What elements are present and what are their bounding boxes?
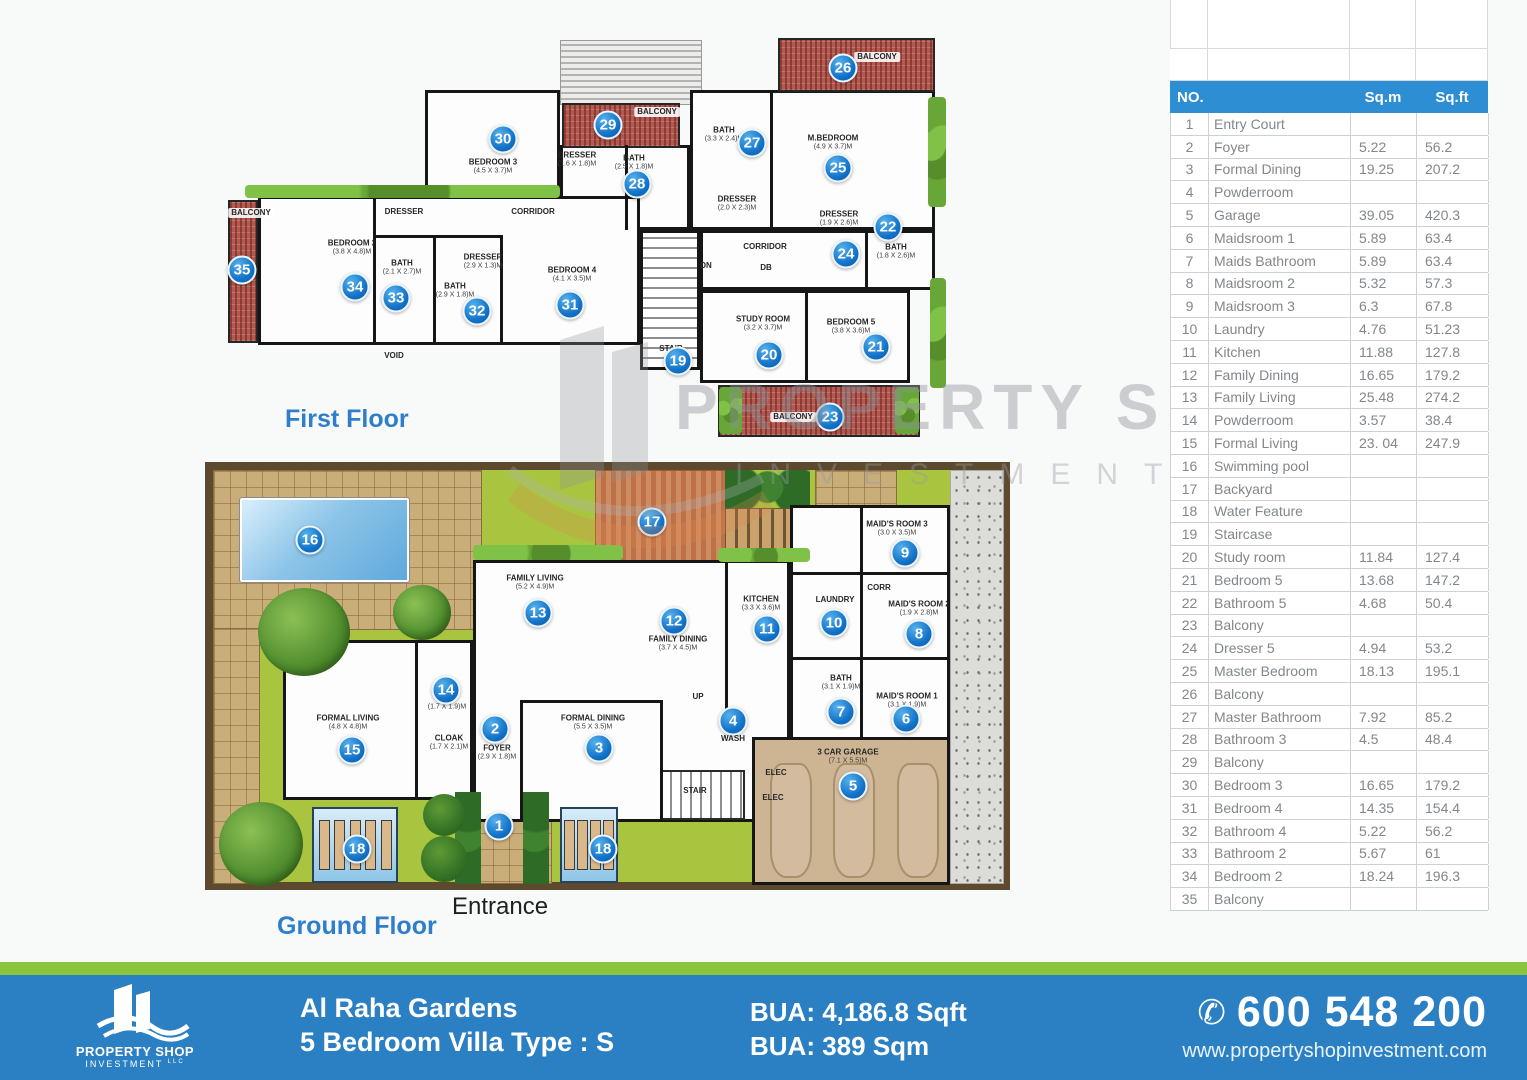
bath33-dims: (2.1 x 2.7)m	[383, 269, 422, 278]
table-cell: 57.3	[1417, 273, 1489, 295]
table-cell	[1351, 615, 1417, 637]
table-row: 15Formal Living23. 04247.9	[1170, 432, 1488, 455]
table-cell: 51.23	[1417, 318, 1489, 340]
balcony26-label: BALCONY	[854, 52, 900, 62]
ff-dresser-a-dims: (1.6 x 1.8)m	[558, 161, 597, 170]
table-cell: 85.2	[1417, 706, 1489, 728]
table-cell	[1417, 615, 1489, 637]
gravel-side-yard	[950, 470, 1004, 884]
ff-db-label: DB	[760, 263, 772, 273]
cloak-name: CLOAK	[435, 734, 463, 743]
gf-corr-label: CORR	[867, 583, 891, 593]
tree	[258, 588, 350, 676]
table-cell: Water Feature	[1209, 501, 1351, 523]
gf-stair-name: STAIR	[683, 786, 706, 795]
balcony-planter	[719, 387, 742, 434]
foyer-marker: 2	[481, 715, 510, 744]
company-logo-title: PROPERTY SHOP	[40, 1044, 230, 1059]
table-cell: 13.68	[1351, 569, 1417, 591]
hedge	[718, 548, 810, 562]
foyer-label: FOYER(2.9 x 1.8)m	[478, 744, 517, 763]
tree	[219, 802, 303, 886]
table-cell: 20	[1171, 546, 1209, 568]
balcony29-marker: 29	[594, 111, 623, 140]
family-living-label: FAMILY LIVING(5.2 x 4.9)m	[506, 574, 563, 593]
mbedroom-name: M.BEDROOM	[808, 134, 859, 143]
table-row: 24Dresser 54.9453.2	[1170, 637, 1488, 660]
entrance-palms	[523, 792, 549, 884]
wall	[770, 90, 773, 230]
table-cell	[1417, 478, 1489, 500]
phone-icon: ✆	[1197, 993, 1227, 1033]
table-row: 22Bathroom 54.6850.4	[1170, 592, 1488, 615]
table-cell: 5.22	[1351, 820, 1417, 842]
table-cell: 27	[1171, 706, 1209, 728]
table-cell	[1351, 523, 1417, 545]
wall	[725, 560, 728, 712]
wf-right-marker: 18	[589, 835, 618, 864]
table-cell: 24	[1171, 637, 1209, 659]
table-cell: Balcony	[1209, 683, 1351, 705]
table-cell: Swimming pool	[1209, 455, 1351, 477]
ff-dresser-b-label: DRESSER(2.0 x 2.3)m	[718, 195, 757, 214]
table-cell: 61	[1417, 843, 1489, 865]
table-cell: 33	[1171, 843, 1209, 865]
table-row: 13Family Living25.48274.2	[1170, 387, 1488, 410]
bath22-marker: 22	[874, 213, 903, 242]
formal-living-marker: 15	[338, 736, 367, 765]
table-cell: Bathroom 5	[1209, 592, 1351, 614]
table-cell: 4.68	[1351, 592, 1417, 614]
table-row: 30Bedroom 316.65179.2	[1170, 774, 1488, 797]
table-cell: 28	[1171, 729, 1209, 751]
ff-dresser-a-label: DRESSER(1.6 x 1.8)m	[558, 151, 597, 170]
formal-living-dims: (4.8 x 4.8)m	[317, 724, 380, 733]
table-cell: 23. 04	[1351, 432, 1417, 454]
balcony35-name: BALCONY	[231, 208, 271, 217]
table-cell	[1351, 478, 1417, 500]
ff-corridor-b-name: CORRIDOR	[743, 242, 787, 251]
table-cell: Foyer	[1209, 136, 1351, 158]
foyer-name: FOYER	[483, 744, 511, 753]
table-cell: Kitchen	[1209, 341, 1351, 363]
family-living-marker: 13	[524, 599, 553, 628]
swimming-pool	[240, 498, 409, 582]
table-cell: 25	[1171, 660, 1209, 682]
bath27-marker: 27	[738, 129, 767, 158]
table-cell: 18.13	[1351, 660, 1417, 682]
wall	[500, 235, 503, 345]
bedroom4-dims: (4.1 x 3.5)m	[548, 276, 596, 285]
table-cell: Entry Court	[1209, 113, 1351, 135]
wash-label: WASH	[721, 734, 745, 744]
table-row: 27Master Bathroom7.9285.2	[1170, 706, 1488, 729]
table-cell: Balcony	[1209, 615, 1351, 637]
table-cell: 10	[1171, 318, 1209, 340]
gf-elec-b-label: ELEC	[762, 793, 783, 803]
table-cell: Powderroom	[1209, 409, 1351, 431]
hedge	[473, 545, 623, 560]
table-cell: 25.48	[1351, 387, 1417, 409]
garage-name: 3 CAR GARAGE	[817, 748, 878, 757]
bedroom2-label: BEDROOM 2(3.8 x 4.8)m	[328, 239, 376, 258]
bedroom2-marker: 34	[341, 273, 370, 302]
bua-sqm: BUA: 389 Sqm	[750, 1031, 929, 1062]
gf-elec-b-name: ELEC	[762, 793, 783, 802]
table-cell	[1417, 683, 1489, 705]
table-cell: 21	[1171, 569, 1209, 591]
table-cell: 14.35	[1351, 797, 1417, 819]
empty-cell	[1350, 49, 1416, 81]
ff-dn-label: DN	[700, 261, 712, 271]
table-cell: 18	[1171, 501, 1209, 523]
laundry-label: LAUNDRY	[816, 595, 855, 605]
bath7-name: BATH	[830, 674, 852, 683]
bedroom5-marker: 21	[862, 333, 891, 362]
bedroom3-dims: (4.5 x 3.7)m	[469, 168, 517, 177]
table-cell: Maidsroom 3	[1209, 295, 1351, 317]
table-cell: 154.4	[1417, 797, 1489, 819]
table-cell: 196.3	[1417, 865, 1489, 887]
bath33-label: BATH(2.1 x 2.7)m	[383, 259, 422, 278]
balcony26-name: BALCONY	[857, 52, 897, 61]
family-dining-dims: (3.7 x 4.5)m	[649, 645, 708, 654]
table-cell: 179.2	[1417, 364, 1489, 386]
formal-dining-label: FORMAL DINING(5.5 x 3.5)m	[561, 714, 625, 733]
wall	[860, 505, 863, 740]
table-cell: Balcony	[1209, 751, 1351, 773]
table-cell: 16.65	[1351, 364, 1417, 386]
laundry-marker: 10	[820, 609, 849, 638]
kitchen-dims: (3.3 x 3.6)m	[742, 605, 781, 614]
ground-floor-plan: 1FOYER(2.9 x 1.8)m2FORMAL DINING(5.5 x 3…	[205, 462, 1010, 890]
bedroom3-label: BEDROOM 3(4.5 x 3.7)m	[469, 158, 517, 177]
formal-living-name: FORMAL LIVING	[317, 714, 380, 723]
dresser24-marker: 24	[832, 240, 861, 269]
table-row: 11Kitchen11.88127.8	[1170, 341, 1488, 364]
table-row: 4Powderroom	[1170, 181, 1488, 204]
ff-dresser-d-name: DRESSER	[385, 207, 424, 216]
dresser24-name: DRESSER	[820, 210, 859, 219]
table-row: 10Laundry4.7651.23	[1170, 318, 1488, 341]
bedroom5-name: BEDROOM 5	[827, 318, 875, 327]
wall	[415, 640, 418, 800]
table-cell: Maids Bathroom	[1209, 250, 1351, 272]
table-cell: Bathroom 2	[1209, 843, 1351, 865]
table-cell: 5.67	[1351, 843, 1417, 865]
bath28-name: BATH	[623, 154, 645, 163]
table-row: 25Master Bedroom18.13195.1	[1170, 660, 1488, 683]
table-cell: 23	[1171, 615, 1209, 637]
area-table-empty-grid	[1170, 0, 1488, 81]
table-cell	[1417, 751, 1489, 773]
table-row: 9Maidsroom 36.367.8	[1170, 295, 1488, 318]
water-feature-bar	[564, 820, 575, 871]
table-row: 1Entry Court	[1170, 113, 1488, 136]
hedge	[930, 278, 946, 388]
table-cell	[1417, 523, 1489, 545]
wall	[865, 230, 868, 290]
bath32-label: BATH(2.9 x 1.8)m	[436, 282, 475, 301]
table-cell: 8	[1171, 273, 1209, 295]
table-cell: 127.8	[1417, 341, 1489, 363]
bath7-label: BATH(3.1 x 1.9)m	[822, 674, 861, 693]
table-cell: 67.8	[1417, 295, 1489, 317]
table-cell: 3	[1171, 159, 1209, 181]
table-cell	[1351, 501, 1417, 523]
bath27-name: BATH	[713, 126, 735, 135]
table-cell: 247.9	[1417, 432, 1489, 454]
ff-corridor-a-label: CORRIDOR	[511, 207, 555, 217]
table-cell: 63.4	[1417, 250, 1489, 272]
table-row: 23Balcony	[1170, 615, 1488, 638]
study20-dims: (3.2 x 3.7)m	[736, 325, 790, 334]
table-row: 12Family Dining16.65179.2	[1170, 364, 1488, 387]
table-cell: 19.25	[1351, 159, 1417, 181]
table-cell	[1417, 455, 1489, 477]
hedge	[928, 97, 946, 207]
bedroom2-name: BEDROOM 2	[328, 239, 376, 248]
table-cell: Bedroom 4	[1209, 797, 1351, 819]
maid3-label: MAID'S ROOM 3(3.0 x 3.5)m	[866, 520, 927, 539]
column-header-sqm: Sq.m	[1350, 89, 1416, 106]
wf-left-marker: 18	[343, 835, 372, 864]
bua-sqft: BUA: 4,186.8 Sqft	[750, 997, 967, 1028]
formal-dining-name: FORMAL DINING	[561, 714, 625, 723]
table-cell: 48.4	[1417, 729, 1489, 751]
table-cell: 11.88	[1351, 341, 1417, 363]
table-cell: 16	[1171, 455, 1209, 477]
family-living-dims: (5.2 x 4.9)m	[506, 584, 563, 593]
ff-dresser-c-name: DRESSER	[464, 253, 503, 262]
table-cell: Maidsroom 1	[1209, 227, 1351, 249]
table-cell: 39.05	[1351, 204, 1417, 226]
table-cell: Garage	[1209, 204, 1351, 226]
table-row: 32Bathroom 45.2256.2	[1170, 820, 1488, 843]
column-header-sqft: Sq.ft	[1416, 89, 1488, 106]
bath22-dims: (1.8 x 2.6)m	[877, 253, 916, 262]
ff-dresser-a-name: DRESSER	[558, 151, 597, 160]
table-row: 34Bedroom 218.24196.3	[1170, 865, 1488, 888]
table-cell: 50.4	[1417, 592, 1489, 614]
table-row: 21Bedroom 513.68147.2	[1170, 569, 1488, 592]
table-cell: 6	[1171, 227, 1209, 249]
laundry-name: LAUNDRY	[816, 595, 855, 604]
bath7-dims: (3.1 x 1.9)m	[822, 684, 861, 693]
table-cell: 38.4	[1417, 409, 1489, 431]
table-cell: 22	[1171, 592, 1209, 614]
table-cell	[1351, 751, 1417, 773]
bath22-label: BATH(1.8 x 2.6)m	[877, 243, 916, 262]
bath28-marker: 28	[623, 170, 652, 199]
balcony23-marker: 23	[816, 403, 845, 432]
empty-cell	[1416, 0, 1488, 49]
garage-dims: (7.1 x 5.5)m	[817, 758, 878, 767]
gf-stair-label: STAIR	[683, 786, 706, 796]
gf-corr-name: CORR	[867, 583, 891, 592]
table-cell: Master Bedroom	[1209, 660, 1351, 682]
table-cell: Study room	[1209, 546, 1351, 568]
area-table-header: NO. Sq.m Sq.ft	[1170, 81, 1488, 113]
ff-corridor-b-label: CORRIDOR	[743, 242, 787, 252]
table-cell	[1351, 683, 1417, 705]
table-cell: 4.94	[1351, 637, 1417, 659]
bush	[421, 836, 467, 882]
table-cell: Formal Living	[1209, 432, 1351, 454]
website-url[interactable]: www.propertyshopinvestment.com	[1182, 1040, 1487, 1063]
table-row: 19Staircase	[1170, 523, 1488, 546]
table-cell: 4	[1171, 181, 1209, 203]
family-dining-label: FAMILY DINING(3.7 x 4.5)m	[649, 635, 708, 654]
table-cell: 11	[1171, 341, 1209, 363]
table-cell: Master Bathroom	[1209, 706, 1351, 728]
table-cell: Bedroom 3	[1209, 774, 1351, 796]
gf-up-label: UP	[692, 692, 703, 702]
table-cell	[1351, 455, 1417, 477]
stair19-marker: 19	[664, 347, 693, 376]
powder14-marker: 14	[432, 676, 461, 705]
table-cell	[1351, 181, 1417, 203]
table-cell: 17	[1171, 478, 1209, 500]
table-cell: 53.2	[1417, 637, 1489, 659]
entrance-label: Entrance	[452, 893, 548, 921]
bedroom4-name: BEDROOM 4	[548, 266, 596, 275]
table-cell: 195.1	[1417, 660, 1489, 682]
balcony29-label: BALCONY	[634, 107, 680, 117]
ff-db-name: DB	[760, 263, 772, 272]
pergola	[560, 40, 702, 105]
table-cell: 32	[1171, 820, 1209, 842]
table-cell: 7.92	[1351, 706, 1417, 728]
formal-living-label: FORMAL LIVING(4.8 x 4.8)m	[317, 714, 380, 733]
table-cell: Bathroom 4	[1209, 820, 1351, 842]
table-cell: 18.24	[1351, 865, 1417, 887]
table-cell: 56.2	[1417, 820, 1489, 842]
family-living-name: FAMILY LIVING	[506, 574, 563, 583]
pool16-marker: 16	[296, 526, 325, 555]
entry1-marker: 1	[485, 812, 514, 841]
family-dining-name: FAMILY DINING	[649, 635, 708, 644]
bedroom3-marker: 30	[489, 125, 518, 154]
table-row: 2Foyer5.2256.2	[1170, 136, 1488, 159]
maid2-name: MAID'S ROOM 2	[888, 600, 949, 609]
table-cell: Balcony	[1209, 888, 1351, 910]
balcony29-name: BALCONY	[637, 107, 677, 116]
table-row: 33Bathroom 25.6761	[1170, 843, 1488, 866]
maid2-marker: 8	[905, 620, 934, 649]
table-cell: 29	[1171, 751, 1209, 773]
table-cell: 5	[1171, 204, 1209, 226]
study20-marker: 20	[755, 341, 784, 370]
balcony35-label: BALCONY	[228, 208, 274, 218]
table-cell: 12	[1171, 364, 1209, 386]
bedroom2-dims: (3.8 x 4.8)m	[328, 249, 376, 258]
formal-dining-marker: 3	[585, 734, 614, 763]
car-icon	[770, 763, 812, 878]
empty-cell	[1170, 0, 1208, 49]
wall	[660, 700, 663, 822]
table-row: 6Maidsroom 15.8963.4	[1170, 227, 1488, 250]
phone-number[interactable]: ✆ 600 548 200	[1197, 988, 1487, 1037]
table-cell	[1417, 113, 1489, 135]
water-feature-bar	[577, 820, 588, 871]
gf-elec-a-label: ELEC	[765, 768, 786, 778]
maid3-dims: (3.0 x 3.5)m	[866, 530, 927, 539]
ff-void-label: VOID	[384, 351, 404, 361]
water-feature-bar	[319, 820, 330, 871]
table-row: 28Bathroom 34.548.4	[1170, 729, 1488, 752]
balcony23-label: BALCONY	[770, 412, 816, 422]
mbedroom-dims: (4.9 x 3.7)m	[808, 144, 859, 153]
garage-marker: 5	[839, 772, 868, 801]
company-logo-subtitle: INVESTMENT LLC	[40, 1059, 230, 1069]
wall	[373, 196, 376, 345]
family-dining-marker: 12	[660, 607, 689, 636]
ff-corridor-a-name: CORRIDOR	[511, 207, 555, 216]
table-cell: 9	[1171, 295, 1209, 317]
company-logo: PROPERTY SHOP INVESTMENT LLC	[40, 980, 230, 1069]
ff-dn-name: DN	[700, 261, 712, 270]
powder14-label: (1.7 x 1.9)m	[428, 704, 467, 713]
ff-dresser-b-name: DRESSER	[718, 195, 757, 204]
table-cell: 3.57	[1351, 409, 1417, 431]
ff-void-name: VOID	[384, 351, 404, 360]
bush	[423, 794, 465, 836]
table-cell: Laundry	[1209, 318, 1351, 340]
table-cell	[1351, 888, 1417, 910]
study20-name: STUDY ROOM	[736, 315, 790, 324]
bath32-marker: 32	[463, 297, 492, 326]
table-cell: 6.3	[1351, 295, 1417, 317]
first-floor-title: First Floor	[285, 405, 409, 434]
bath33-marker: 33	[382, 284, 411, 313]
dresser24-dims: (1.9 x 2.6)m	[820, 220, 859, 229]
table-row: 17Backyard	[1170, 478, 1488, 501]
bath32-name: BATH	[444, 282, 466, 291]
formal-dining-dims: (5.5 x 3.5)m	[561, 724, 625, 733]
maid1-marker: 6	[892, 705, 921, 734]
maid3-marker: 9	[891, 539, 920, 568]
table-cell: 5.89	[1351, 227, 1417, 249]
ff-dresser-c-dims: (2.9 x 1.3)m	[464, 263, 503, 272]
table-row: 7Maids Bathroom5.8963.4	[1170, 250, 1488, 273]
table-cell: 207.2	[1417, 159, 1489, 181]
maid1-name: MAID'S ROOM 1	[876, 692, 937, 701]
table-cell: Bedroom 5	[1209, 569, 1351, 591]
table-cell: 26	[1171, 683, 1209, 705]
hedge	[245, 185, 560, 198]
foyer-dims: (2.9 x 1.8)m	[478, 754, 517, 763]
table-cell: Formal Dining	[1209, 159, 1351, 181]
cloak-dims: (1.7 x 2.1)m	[430, 744, 469, 753]
maid3-name: MAID'S ROOM 3	[866, 520, 927, 529]
table-cell: 19	[1171, 523, 1209, 545]
table-cell	[1417, 888, 1489, 910]
empty-cell	[1208, 0, 1350, 49]
garage-label: 3 CAR GARAGE(7.1 x 5.5)m	[817, 748, 878, 767]
table-cell: 5.32	[1351, 273, 1417, 295]
bedroom4-label: BEDROOM 4(4.1 x 3.5)m	[548, 266, 596, 285]
table-row: 16Swimming pool	[1170, 455, 1488, 478]
table-cell: 4.76	[1351, 318, 1417, 340]
mbedroom-marker: 25	[824, 154, 853, 183]
gf-elec-a-name: ELEC	[765, 768, 786, 777]
cloak-label: CLOAK(1.7 x 2.1)m	[430, 734, 469, 753]
villa-type: 5 Bedroom Villa Type : S	[300, 1027, 614, 1058]
table-cell	[1417, 501, 1489, 523]
balcony26-marker: 26	[829, 54, 858, 83]
maid2-dims: (1.9 x 2.8)m	[888, 610, 949, 619]
